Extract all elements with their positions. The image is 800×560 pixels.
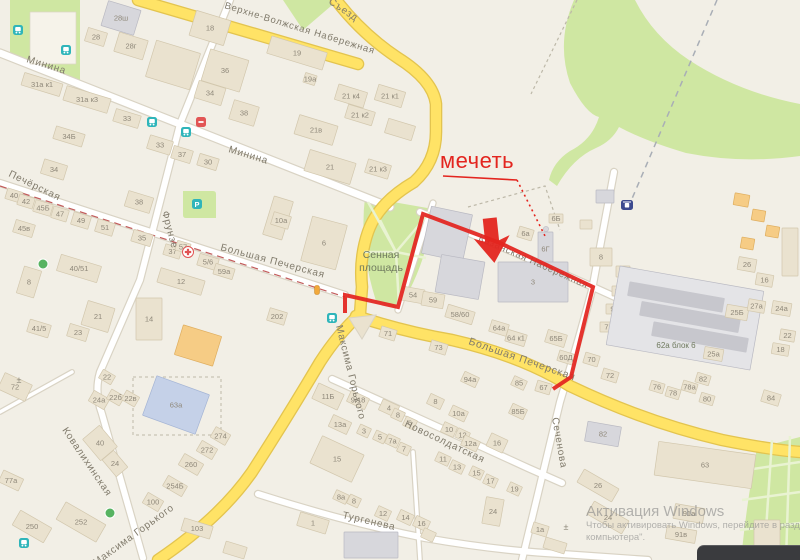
building[interactable]: 59а [213, 263, 235, 279]
building-number: 202 [271, 312, 284, 321]
building[interactable]: 67 [535, 380, 553, 395]
building-number: 6Г [541, 245, 549, 254]
building-number: 8 [599, 253, 603, 262]
building-footprint [765, 225, 780, 238]
building-number: 22 [783, 331, 791, 340]
building-number: 34 [206, 89, 214, 98]
building-number: 16 [417, 519, 425, 528]
building[interactable]: 82 [585, 421, 622, 447]
building-number: 250 [26, 522, 39, 531]
building-number: 45Б [36, 204, 49, 213]
building-number: 17 [486, 477, 494, 486]
building-number: 85Б [511, 407, 524, 416]
watermark-line3: компьютера". [586, 532, 800, 544]
building[interactable]: 13 [449, 460, 466, 475]
building-number: 59 [429, 296, 437, 305]
area-label: площадь [359, 262, 403, 274]
building-number: 18 [206, 24, 214, 33]
building[interactable]: 16 [755, 273, 774, 288]
building[interactable]: 70 [583, 352, 601, 367]
building-number: 28ш [114, 14, 128, 23]
building-number: 40 [96, 439, 104, 448]
building-number: 27а [750, 302, 763, 311]
building[interactable] [765, 225, 780, 238]
building-footprint [223, 541, 248, 559]
building[interactable]: 40/51 [56, 254, 101, 283]
map-canvas[interactable]: 28ш2828г1836343831а к131а к33334Б3337303… [0, 0, 800, 560]
building-number: 40 [10, 191, 18, 200]
building-number: 41/5 [32, 324, 47, 333]
building-number: 260 [185, 460, 198, 469]
building-number: 94а [464, 375, 477, 384]
building[interactable]: 24а [88, 390, 110, 409]
watermark-title: Активация Windows [586, 503, 800, 520]
building-number: 7а [388, 437, 397, 446]
building[interactable]: 254Б [162, 475, 187, 496]
building[interactable]: 8 [426, 393, 444, 409]
building-number: 14 [145, 315, 153, 324]
street-label: Фрунзе [159, 210, 180, 250]
building[interactable]: 274 [210, 427, 231, 446]
building-footprint [733, 193, 750, 207]
building[interactable]: 21 к2 [345, 104, 376, 126]
building-number: 25Б [730, 308, 743, 317]
building-number: 3 [362, 427, 366, 436]
building-number: 12 [177, 277, 185, 286]
building-number: 60Д [559, 353, 572, 362]
area-label: Сенная [363, 249, 400, 261]
building-number: 54 [409, 291, 417, 300]
building[interactable] [384, 118, 415, 141]
building-number: 6а [521, 229, 530, 238]
building[interactable] [733, 193, 750, 207]
dome-icon[interactable] [543, 226, 548, 231]
building-footprint [740, 237, 755, 250]
building-number: 63 [701, 461, 709, 470]
building-number: 80 [703, 395, 711, 404]
building[interactable]: 22 [779, 329, 796, 342]
svg-text:P: P [194, 200, 199, 209]
hospital-icon[interactable] [183, 247, 194, 258]
building[interactable]: 21 к3 [364, 159, 391, 179]
building-number: 8 [27, 278, 31, 287]
building-number: 64а [493, 324, 506, 333]
park-area[interactable] [549, 0, 800, 186]
building-number: 8а [337, 493, 346, 502]
building[interactable]: 24а [771, 300, 792, 316]
building-number: 67 [539, 383, 547, 392]
building-number: 14 [401, 513, 409, 522]
building-footprint [174, 325, 221, 366]
building-number: 21 [94, 312, 102, 321]
building[interactable]: 26 [577, 469, 619, 502]
building-number: 58/60 [451, 310, 470, 319]
building-footprint [596, 190, 614, 203]
building[interactable]: 6 [301, 216, 348, 270]
building-number: 8 [433, 397, 437, 406]
building-footprint [782, 228, 798, 276]
building-number: 38 [240, 109, 248, 118]
building-number: 3 [531, 278, 535, 287]
building-number: 1а [536, 525, 545, 534]
building-number: 77а [5, 476, 18, 485]
building-number: 71 [384, 329, 392, 338]
building-number: 10 [445, 425, 453, 434]
transit-icon[interactable] [181, 127, 191, 137]
building-number: 24 [489, 507, 497, 516]
building[interactable]: 85 [511, 376, 528, 391]
bottom-right-dark-panel [697, 545, 800, 560]
map-render-layer: 28ш2828г1836343831а к131а к33334Б3337303… [0, 0, 800, 560]
building[interactable]: 59 [421, 291, 445, 309]
transit-icon[interactable] [147, 117, 157, 127]
building[interactable]: 28г [114, 32, 149, 60]
watermark-line2: Чтобы активировать Windows, перейдите в … [586, 520, 800, 532]
building-number: 21 [326, 163, 334, 172]
building[interactable]: 252 [56, 502, 106, 542]
building-number: 11 [439, 455, 447, 464]
building-number: 35 [138, 234, 146, 243]
mosque-annotation-label: мечеть [440, 148, 514, 174]
building-number: 254Б [166, 482, 184, 491]
annotation-underline [443, 176, 517, 180]
building[interactable]: 27а [747, 299, 766, 314]
building-number: 272 [201, 446, 214, 455]
building-number: 47 [56, 210, 64, 219]
building-number: 23 [74, 328, 82, 337]
parking-icon[interactable]: P [192, 199, 202, 209]
building[interactable]: 22б [106, 389, 124, 406]
traffic-icon[interactable] [315, 286, 320, 295]
building[interactable]: 22в [121, 390, 139, 407]
building[interactable]: 11 [435, 452, 452, 467]
building[interactable] [596, 190, 614, 203]
building[interactable]: 77а [0, 470, 24, 491]
building[interactable]: 34 [40, 159, 67, 180]
building-number: 274 [214, 432, 227, 441]
building[interactable]: 15 [468, 466, 484, 481]
building[interactable]: 38 [229, 100, 260, 127]
boundary-line [468, 186, 560, 230]
building[interactable]: 15 [310, 436, 364, 483]
building[interactable]: 26 [737, 257, 757, 273]
svg-text:±: ± [564, 522, 569, 532]
building[interactable]: 82 [695, 372, 711, 386]
building[interactable]: 24 [482, 497, 504, 527]
building[interactable]: 18 [771, 343, 790, 357]
building-number: 37 [178, 150, 186, 159]
building[interactable] [435, 254, 485, 299]
building[interactable]: 8 [590, 248, 612, 266]
building-footprint [580, 220, 592, 229]
transit-icon[interactable] [327, 313, 337, 323]
building-number: 24а [775, 304, 788, 313]
building-number: 63а [170, 401, 183, 410]
building-number: 1 [311, 519, 315, 528]
building-number: 6Б [551, 214, 560, 223]
building-number: 38 [135, 198, 143, 207]
building-number: 64 к1 [507, 334, 525, 343]
area-label: 62а блок 6 [656, 341, 696, 350]
building-number: 26 [594, 481, 602, 490]
building-number: 82 [599, 430, 607, 439]
building-number: 13 [453, 463, 461, 472]
building-number: 15 [472, 469, 480, 478]
building-number: 59а [218, 267, 231, 276]
building[interactable]: 30 [197, 153, 220, 170]
building-number: 6 [322, 239, 326, 248]
restricted-icon[interactable] [196, 117, 206, 127]
building-number: 5/6 [203, 258, 213, 267]
building[interactable]: 28ш [101, 1, 141, 36]
tree-icon[interactable] [105, 508, 115, 518]
building[interactable]: 64 к1 [505, 329, 528, 346]
building-number: 70 [587, 355, 595, 364]
building-number: 24 [111, 459, 119, 468]
building-number: 7 [402, 445, 406, 454]
building-number: 78 [669, 389, 677, 398]
building-number: 30 [204, 158, 212, 167]
building-number: 45в [18, 224, 30, 233]
building[interactable]: 84 [761, 390, 782, 407]
building-footprint [384, 118, 415, 141]
mosque-arrow-icon [472, 216, 513, 265]
building-number: 22б [109, 393, 122, 402]
building[interactable]: 6а [517, 226, 535, 241]
building-number: 11Б [322, 392, 335, 401]
building-number: 21 к1 [381, 92, 399, 101]
building[interactable]: 202 [266, 308, 287, 326]
building-number: 78а [683, 383, 696, 392]
building-number: 28 [92, 33, 100, 42]
building[interactable]: 41/5 [27, 319, 52, 338]
building-number: 36 [221, 66, 229, 75]
building-number: 10а [275, 216, 288, 225]
building-number: 28г [125, 42, 136, 51]
building-number: 31а к3 [76, 95, 98, 104]
building[interactable] [344, 532, 398, 558]
building-number: 21 к4 [342, 92, 360, 101]
building[interactable]: 3 [356, 424, 371, 438]
building[interactable]: 38 [124, 191, 154, 214]
building[interactable]: 14 [136, 298, 162, 340]
building[interactable]: 21 к4 [334, 84, 367, 108]
building[interactable]: 85Б [508, 403, 527, 420]
building-number: 13а [334, 420, 347, 429]
building[interactable]: 45в [13, 219, 36, 237]
building[interactable]: 250 [12, 510, 52, 543]
svg-text:±: ± [17, 375, 22, 385]
building[interactable]: 10а [448, 405, 468, 422]
building[interactable]: 17 [482, 474, 498, 489]
building-number: 8 [352, 497, 356, 506]
building[interactable]: 14 [396, 509, 414, 525]
building-number: 100 [147, 498, 160, 507]
building-number: 72 [606, 371, 614, 380]
building-number: 19а [304, 75, 317, 84]
transit-icon[interactable] [19, 538, 29, 548]
building[interactable]: 94а [460, 371, 479, 388]
building-footprint [344, 532, 398, 558]
building-number: 24а [93, 396, 106, 405]
building-number: 82 [699, 375, 707, 384]
plusminus-icon[interactable]: ± [564, 522, 569, 532]
building-number: 33 [156, 141, 164, 150]
building[interactable]: 8 [16, 266, 41, 298]
building-number: 16 [493, 439, 501, 448]
building[interactable]: 63а [143, 376, 210, 435]
building[interactable]: 21в [294, 115, 338, 146]
building-number: 10а [452, 409, 465, 418]
building-number: 22 [103, 373, 111, 382]
building[interactable]: 80 [699, 392, 715, 406]
building-number: 42 [22, 197, 30, 206]
building[interactable]: 260 [178, 453, 204, 475]
building-footprint [751, 209, 766, 222]
building[interactable]: 19а [303, 72, 317, 85]
building[interactable]: 28 [84, 27, 107, 46]
building[interactable]: 72 [601, 368, 620, 383]
building-number: 73 [434, 343, 442, 352]
building[interactable]: 33 [146, 135, 173, 155]
building-number: 15 [333, 455, 341, 464]
building[interactable]: 11Б [312, 383, 345, 410]
building[interactable]: 78 [665, 386, 681, 400]
building-number: 8 [396, 411, 400, 420]
cablecar-icon[interactable] [621, 200, 633, 210]
building-number: 103 [191, 524, 204, 533]
building[interactable]: 19 [506, 482, 522, 497]
building[interactable]: 76 [649, 380, 665, 394]
building[interactable]: 34Б [53, 126, 85, 147]
building-number: 16 [760, 276, 768, 285]
tree-icon[interactable] [38, 259, 48, 269]
building[interactable]: 65Б [545, 329, 568, 347]
building-number: 51 [101, 223, 109, 232]
building[interactable]: 6Б [549, 214, 563, 223]
building[interactable]: 58/60 [445, 304, 476, 325]
building-number: 7 [604, 323, 608, 332]
street-label: Съезд [326, 0, 360, 24]
building-number: 33 [123, 114, 131, 123]
building[interactable]: 12 [157, 268, 205, 296]
building-number: 19 [510, 485, 518, 494]
building-number: 252 [75, 518, 88, 527]
building-number: 18 [776, 345, 784, 354]
transit-icon[interactable] [61, 45, 71, 55]
building[interactable] [580, 220, 592, 229]
building-number: 21 к2 [351, 111, 369, 120]
building[interactable]: 21 к1 [374, 84, 405, 107]
building-number: 5 [378, 433, 382, 442]
transit-icon[interactable] [13, 25, 23, 35]
building[interactable] [740, 237, 755, 250]
building-number: 76 [653, 383, 661, 392]
building[interactable]: 13а [328, 414, 352, 434]
building-number: 85 [515, 379, 523, 388]
building[interactable] [174, 325, 221, 366]
building-number: 25а [707, 350, 720, 359]
building-number: 31а к1 [31, 80, 53, 89]
building-number: 34 [50, 165, 58, 174]
building-number: 65Б [549, 334, 562, 343]
building[interactable]: 272 [196, 440, 218, 459]
building-number: 34Б [62, 132, 75, 141]
building-number: 26 [743, 260, 751, 269]
building-number: 4 [387, 404, 391, 413]
plusminus-icon[interactable]: ± [17, 375, 22, 385]
building-number: 21в [310, 126, 322, 135]
building[interactable]: 7 [396, 442, 411, 456]
building[interactable] [782, 228, 798, 276]
building[interactable]: 1а [531, 522, 550, 537]
building-number: 12 [379, 509, 387, 518]
building-number: 22в [124, 394, 136, 403]
building-number: 21 к3 [369, 165, 387, 174]
building-number: 49 [77, 216, 85, 225]
windows-activation-watermark: Активация Windows Чтобы активировать Win… [586, 503, 800, 544]
building-number: 40/51 [70, 264, 89, 273]
building-number: 19 [293, 49, 301, 58]
building-number: 84 [767, 394, 775, 403]
building[interactable]: 21 [81, 300, 115, 332]
building-footprint [435, 254, 485, 299]
building[interactable] [751, 209, 766, 222]
building[interactable] [223, 541, 248, 559]
